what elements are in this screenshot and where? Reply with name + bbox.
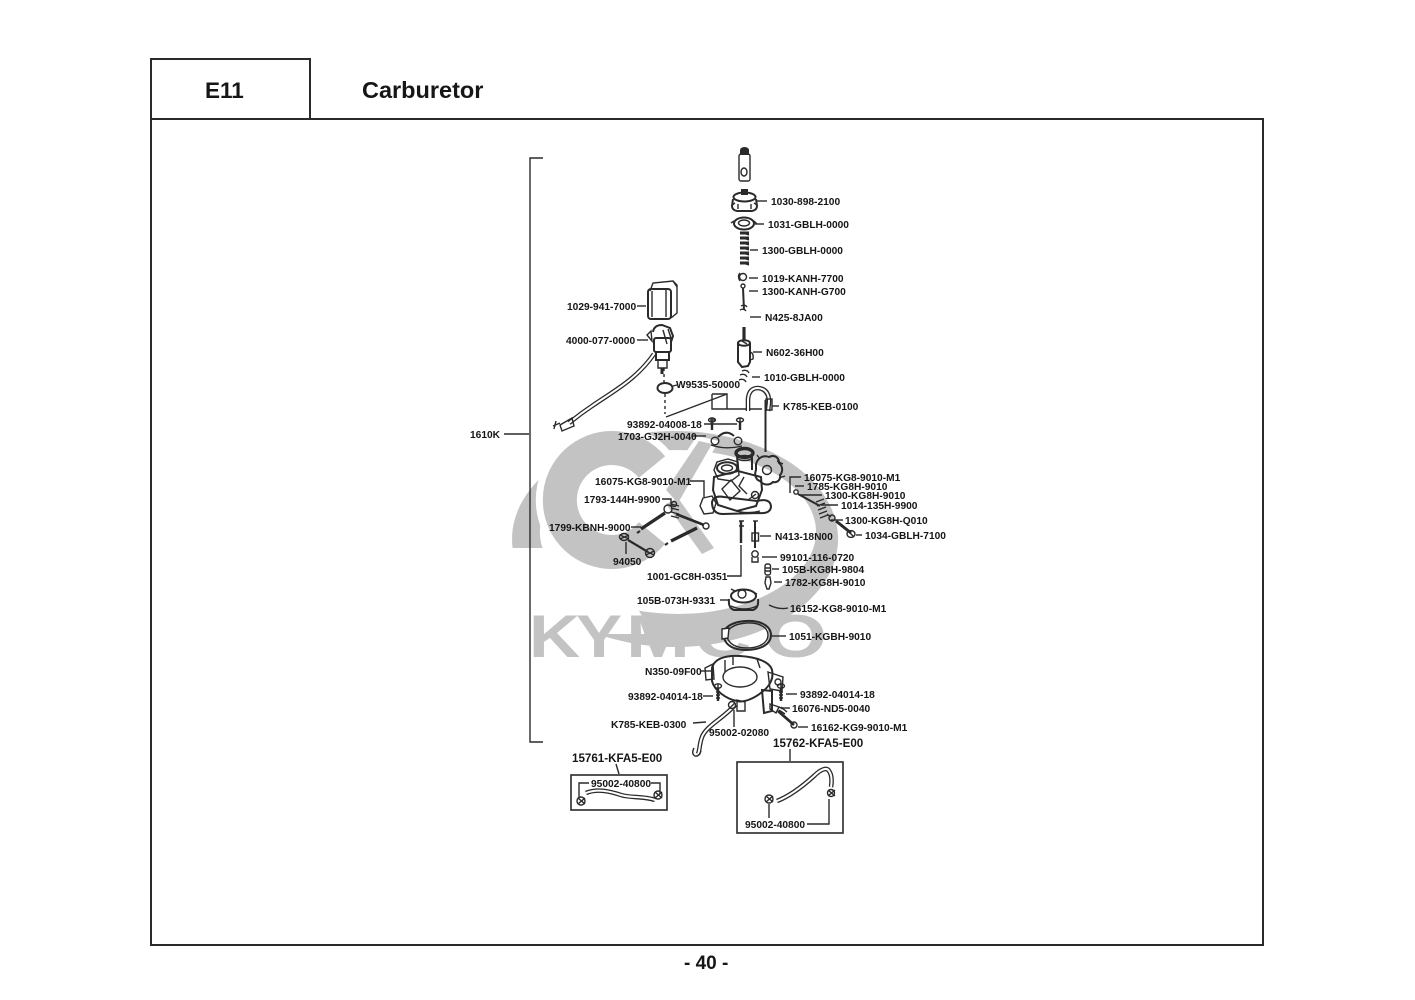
svg-text:95002-02080: 95002-02080 bbox=[709, 728, 769, 739]
svg-text:1014-135H-9900: 1014-135H-9900 bbox=[841, 501, 918, 512]
svg-text:1010-GBLH-0000: 1010-GBLH-0000 bbox=[764, 373, 845, 384]
svg-text:N425-8JA00: N425-8JA00 bbox=[765, 313, 823, 324]
svg-text:1793-144H-9900: 1793-144H-9900 bbox=[584, 495, 661, 506]
svg-text:K: K bbox=[529, 603, 580, 670]
svg-text:16075-KG8-9010-M1: 16075-KG8-9010-M1 bbox=[595, 477, 692, 488]
svg-text:1610K: 1610K bbox=[470, 430, 501, 441]
svg-text:N602-36H00: N602-36H00 bbox=[766, 348, 824, 359]
svg-text:1300-KG8H-Q010: 1300-KG8H-Q010 bbox=[845, 516, 928, 527]
svg-text:1051-KGBH-9010: 1051-KGBH-9010 bbox=[789, 632, 871, 643]
svg-text:1703-GJ2H-0040: 1703-GJ2H-0040 bbox=[618, 432, 697, 443]
svg-text:4000-077-0000: 4000-077-0000 bbox=[566, 336, 635, 347]
svg-text:95002-40800: 95002-40800 bbox=[591, 779, 651, 790]
svg-text:1300-GBLH-0000: 1300-GBLH-0000 bbox=[762, 246, 843, 257]
svg-text:1300-KANH-G700: 1300-KANH-G700 bbox=[762, 287, 846, 298]
svg-text:16152-KG8-9010-M1: 16152-KG8-9010-M1 bbox=[790, 604, 887, 615]
svg-text:1799-KBNH-9000: 1799-KBNH-9000 bbox=[549, 523, 631, 534]
svg-text:99101-116-0720: 99101-116-0720 bbox=[780, 553, 855, 564]
svg-text:95002-40800: 95002-40800 bbox=[745, 820, 805, 831]
svg-text:93892-04014-18: 93892-04014-18 bbox=[800, 690, 875, 701]
svg-text:M: M bbox=[626, 603, 690, 670]
svg-text:N350-09F00: N350-09F00 bbox=[645, 667, 702, 678]
svg-text:16076-ND5-0040: 16076-ND5-0040 bbox=[792, 704, 870, 715]
svg-text:93892-04014-18: 93892-04014-18 bbox=[628, 692, 703, 703]
svg-text:1034-GBLH-7100: 1034-GBLH-7100 bbox=[865, 531, 946, 542]
svg-text:1030-898-2100: 1030-898-2100 bbox=[771, 197, 840, 208]
svg-text:E11: E11 bbox=[205, 78, 244, 103]
svg-text:1782-KG8H-9010: 1782-KG8H-9010 bbox=[785, 578, 866, 589]
svg-text:Y: Y bbox=[576, 602, 622, 670]
svg-text:15761-KFA5-E00: 15761-KFA5-E00 bbox=[572, 752, 662, 765]
svg-text:94050: 94050 bbox=[613, 557, 642, 568]
svg-text:- 40 -: - 40 - bbox=[684, 953, 728, 974]
svg-text:105B-KG8H-9804: 105B-KG8H-9804 bbox=[782, 565, 864, 576]
svg-text:Carburetor: Carburetor bbox=[362, 77, 483, 103]
svg-text:16162-KG9-9010-M1: 16162-KG9-9010-M1 bbox=[811, 723, 908, 734]
svg-text:15762-KFA5-E00: 15762-KFA5-E00 bbox=[773, 737, 863, 750]
svg-text:1031-GBLH-0000: 1031-GBLH-0000 bbox=[768, 220, 849, 231]
svg-text:N413-18N00: N413-18N00 bbox=[775, 532, 833, 543]
svg-text:1001-GC8H-0351: 1001-GC8H-0351 bbox=[647, 572, 728, 583]
svg-text:K785-KEB-0300: K785-KEB-0300 bbox=[611, 720, 687, 731]
svg-text:W9535-50000: W9535-50000 bbox=[676, 380, 740, 391]
svg-text:K785-KEB-0100: K785-KEB-0100 bbox=[783, 402, 859, 413]
svg-text:1029-941-7000: 1029-941-7000 bbox=[567, 302, 636, 313]
svg-text:105B-073H-9331: 105B-073H-9331 bbox=[637, 596, 715, 607]
svg-text:93892-04008-18: 93892-04008-18 bbox=[627, 420, 702, 431]
svg-text:1019-KANH-7700: 1019-KANH-7700 bbox=[762, 274, 844, 285]
